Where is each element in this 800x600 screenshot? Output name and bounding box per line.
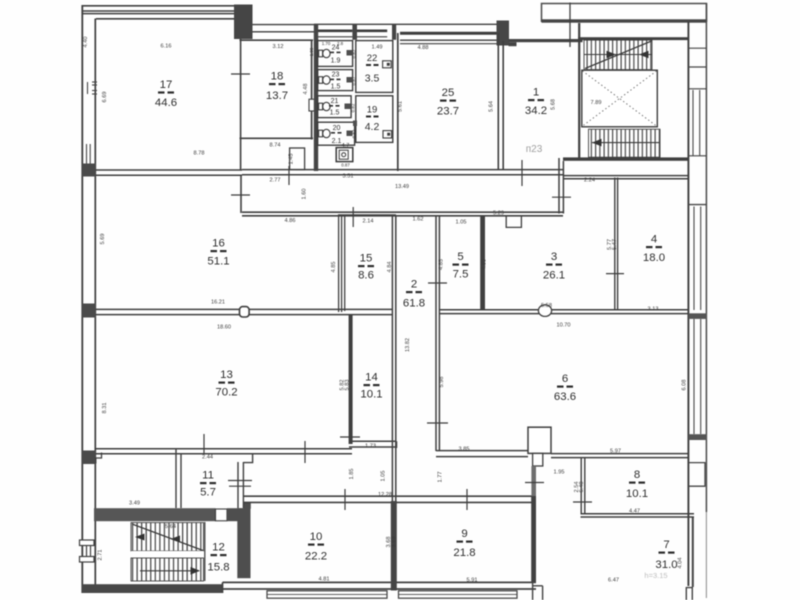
- svg-text:2.8: 2.8: [337, 41, 344, 46]
- svg-text:h=3.15: h=3.15: [644, 571, 667, 580]
- svg-text:4.48: 4.48: [303, 84, 309, 95]
- svg-text:5.29: 5.29: [493, 211, 504, 217]
- svg-text:18.0: 18.0: [643, 252, 665, 264]
- svg-text:4.85: 4.85: [331, 262, 337, 273]
- svg-text:6.16: 6.16: [161, 44, 172, 50]
- svg-text:1.9: 1.9: [331, 58, 341, 65]
- svg-text:7.89: 7.89: [591, 100, 602, 106]
- svg-text:1.5: 1.5: [331, 84, 341, 91]
- svg-text:6.48: 6.48: [579, 482, 585, 493]
- svg-text:13.7: 13.7: [266, 90, 288, 102]
- svg-text:5.91: 5.91: [467, 578, 478, 584]
- svg-text:23.7: 23.7: [437, 106, 459, 118]
- svg-text:16.21: 16.21: [211, 300, 225, 306]
- svg-text:1.45: 1.45: [289, 154, 295, 165]
- svg-text:3.85: 3.85: [459, 447, 470, 453]
- svg-text:5.47: 5.47: [612, 239, 618, 250]
- svg-text:2.71: 2.71: [98, 550, 104, 561]
- svg-text:5.64: 5.64: [165, 524, 176, 530]
- svg-text:10: 10: [310, 531, 323, 543]
- svg-text:12.28: 12.28: [378, 492, 392, 498]
- svg-text:4.86: 4.86: [285, 218, 296, 224]
- svg-text:70.2: 70.2: [215, 387, 237, 399]
- svg-text:10.1: 10.1: [360, 389, 382, 401]
- svg-text:8.78: 8.78: [194, 151, 205, 157]
- svg-text:3.5: 3.5: [365, 73, 380, 85]
- svg-text:2.1: 2.1: [332, 138, 342, 145]
- svg-text:1.70: 1.70: [322, 41, 331, 46]
- svg-text:5.68: 5.68: [551, 99, 557, 110]
- svg-text:6.47: 6.47: [608, 578, 619, 584]
- svg-text:61.8: 61.8: [403, 298, 425, 310]
- svg-text:4.84: 4.84: [387, 262, 393, 273]
- svg-text:21: 21: [331, 98, 339, 105]
- svg-text:1: 1: [533, 87, 539, 99]
- svg-text:0.82: 0.82: [351, 103, 356, 112]
- svg-text:4.47: 4.47: [629, 509, 640, 515]
- svg-text:4.7: 4.7: [342, 143, 350, 149]
- svg-text:3.69: 3.69: [391, 537, 397, 548]
- svg-text:8: 8: [634, 469, 640, 481]
- svg-text:12: 12: [212, 542, 225, 554]
- svg-text:4.83: 4.83: [482, 259, 488, 270]
- svg-text:1.49: 1.49: [372, 45, 383, 51]
- svg-text:20: 20: [333, 125, 341, 132]
- svg-text:18: 18: [271, 71, 284, 83]
- svg-text:п23: п23: [526, 144, 543, 155]
- svg-text:5.83: 5.83: [345, 380, 351, 391]
- svg-text:1.62: 1.62: [413, 217, 424, 223]
- svg-text:9: 9: [461, 528, 467, 540]
- svg-text:5: 5: [457, 251, 463, 263]
- svg-text:8.31: 8.31: [102, 403, 108, 414]
- svg-text:19: 19: [367, 105, 378, 116]
- svg-text:8.74: 8.74: [270, 143, 281, 149]
- svg-text:22: 22: [367, 53, 378, 64]
- svg-text:2.14: 2.14: [363, 219, 374, 225]
- svg-text:5.98: 5.98: [439, 377, 445, 388]
- svg-text:1.60: 1.60: [302, 189, 308, 200]
- svg-text:4: 4: [651, 234, 657, 246]
- svg-text:2: 2: [411, 279, 417, 291]
- svg-text:5.69: 5.69: [100, 234, 106, 245]
- svg-text:26.1: 26.1: [543, 270, 565, 282]
- svg-text:0.82: 0.82: [352, 49, 357, 58]
- svg-text:44.6: 44.6: [155, 97, 177, 109]
- svg-text:4.85: 4.85: [439, 259, 445, 270]
- svg-text:0.87: 0.87: [352, 76, 357, 85]
- svg-text:63.6: 63.6: [554, 391, 576, 403]
- svg-text:2.77: 2.77: [270, 178, 281, 184]
- svg-text:6.08: 6.08: [682, 380, 688, 391]
- svg-text:5.61: 5.61: [398, 101, 404, 112]
- svg-text:14: 14: [365, 372, 378, 384]
- svg-text:13.49: 13.49: [395, 184, 409, 190]
- svg-text:1.05: 1.05: [381, 471, 387, 482]
- svg-text:3.13: 3.13: [648, 307, 659, 313]
- svg-text:1.77: 1.77: [438, 472, 444, 483]
- svg-text:34.2: 34.2: [525, 105, 547, 117]
- svg-text:2.24: 2.24: [584, 178, 595, 184]
- svg-text:10.1: 10.1: [626, 488, 648, 500]
- svg-text:0.82: 0.82: [352, 129, 357, 138]
- svg-text:1.05: 1.05: [456, 220, 467, 226]
- svg-text:7: 7: [663, 539, 669, 551]
- svg-text:5.97: 5.97: [610, 449, 621, 455]
- svg-text:22.2: 22.2: [305, 551, 327, 563]
- svg-text:3: 3: [551, 251, 557, 263]
- svg-text:6.69: 6.69: [102, 92, 108, 103]
- svg-text:51.1: 51.1: [207, 256, 229, 268]
- svg-text:1.5: 1.5: [330, 110, 340, 117]
- svg-text:5.58: 5.58: [541, 303, 552, 309]
- svg-text:13.82: 13.82: [405, 338, 411, 352]
- svg-text:3.12: 3.12: [273, 44, 284, 50]
- svg-text:31.0: 31.0: [655, 559, 677, 571]
- svg-text:17: 17: [160, 79, 173, 91]
- svg-text:4.88: 4.88: [418, 45, 429, 51]
- svg-text:1.85: 1.85: [349, 469, 355, 480]
- svg-text:8.6: 8.6: [358, 270, 374, 282]
- svg-text:7.5: 7.5: [453, 269, 469, 281]
- svg-text:4.40: 4.40: [83, 37, 89, 48]
- svg-text:2.44: 2.44: [202, 455, 213, 461]
- svg-text:1.73: 1.73: [365, 444, 376, 450]
- svg-text:3.51: 3.51: [343, 174, 354, 180]
- svg-text:1.95: 1.95: [554, 470, 565, 476]
- svg-text:5.64: 5.64: [489, 101, 495, 112]
- svg-text:21.8: 21.8: [453, 547, 475, 559]
- svg-text:25: 25: [442, 87, 455, 99]
- svg-text:4.04: 4.04: [678, 558, 684, 569]
- svg-text:11: 11: [202, 470, 214, 482]
- svg-text:16: 16: [212, 238, 225, 250]
- svg-text:18.60: 18.60: [217, 325, 231, 331]
- svg-text:10.70: 10.70: [557, 323, 571, 329]
- svg-text:15.8: 15.8: [207, 562, 229, 574]
- svg-text:4.81: 4.81: [319, 577, 330, 583]
- svg-text:5.7: 5.7: [200, 487, 216, 499]
- svg-text:15: 15: [360, 253, 373, 265]
- svg-text:3.49: 3.49: [129, 501, 140, 507]
- svg-text:23: 23: [332, 72, 340, 79]
- svg-text:13: 13: [220, 369, 233, 381]
- svg-text:1.90: 1.90: [309, 47, 314, 56]
- svg-text:4.2: 4.2: [365, 121, 380, 133]
- svg-text:0.87: 0.87: [341, 163, 350, 168]
- svg-text:6: 6: [562, 373, 568, 385]
